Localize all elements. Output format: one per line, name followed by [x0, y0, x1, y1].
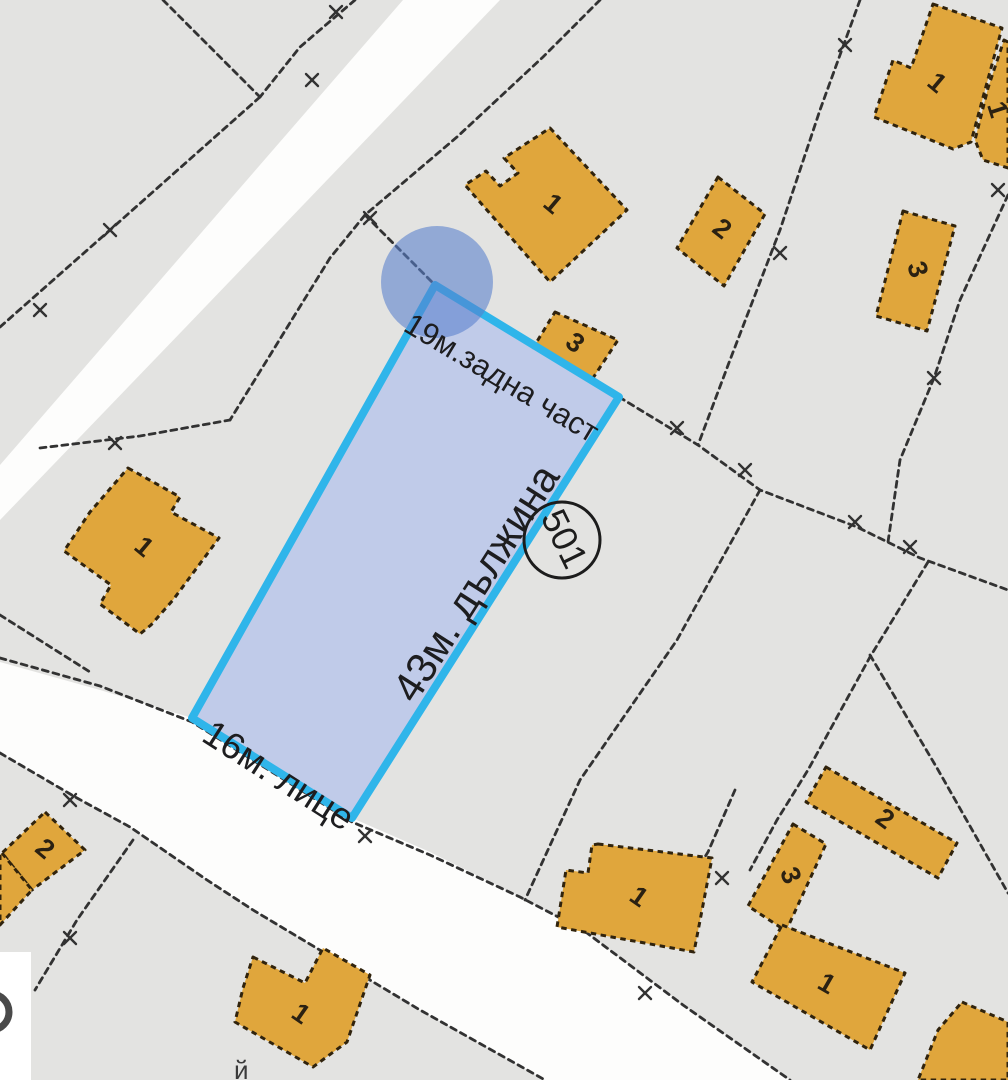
cadastral-map-screenshot: 123113111231219м.задна част43м. дължина1…	[0, 0, 1008, 1080]
watermark-box	[0, 952, 31, 1080]
cadastral-map-canvas[interactable]: 123113111231219м.задна част43м. дължина1…	[0, 0, 1008, 1080]
watermark-fragment	[0, 952, 31, 1080]
cutoff-street-text: й	[234, 1055, 249, 1080]
